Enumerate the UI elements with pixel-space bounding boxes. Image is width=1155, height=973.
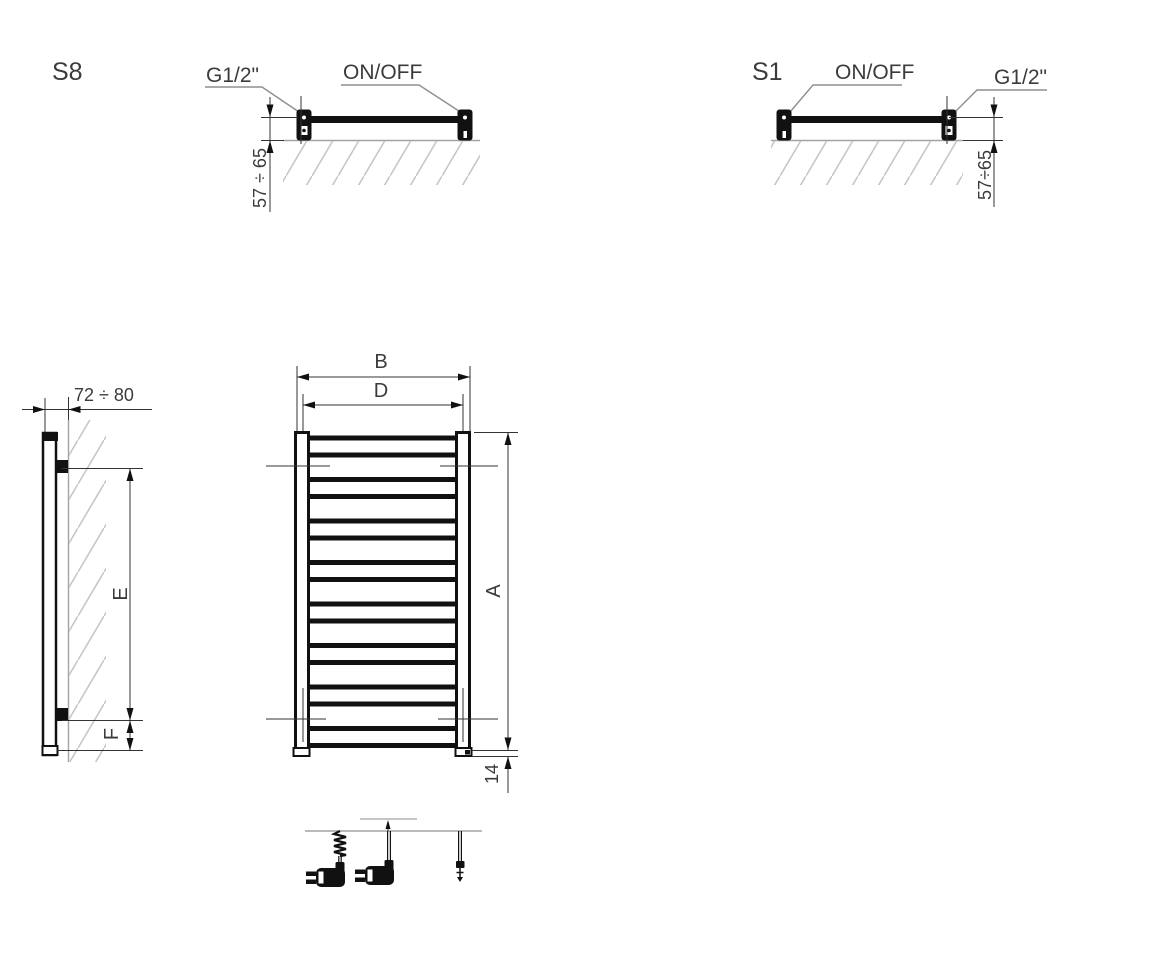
width-overall-label: B	[374, 351, 387, 373]
foot-right-plug	[465, 750, 470, 755]
collector-left	[296, 433, 309, 752]
switch-label-s1: ON/OFF	[835, 61, 914, 84]
entry-arrow-up	[386, 820, 391, 829]
arrow-down	[505, 738, 512, 751]
height-overall-dim: A	[474, 433, 518, 751]
leader-line-g12-s1	[955, 90, 1047, 112]
arrow-up	[505, 757, 512, 770]
height-overall-label: A	[483, 584, 505, 598]
rungs	[309, 436, 456, 749]
rung	[309, 743, 456, 748]
mounting-bracket-left-s8	[297, 110, 312, 141]
wall-hatch-s8	[283, 141, 480, 185]
rung	[309, 477, 456, 482]
rung	[309, 643, 456, 648]
angled-plug-icon	[306, 862, 345, 887]
straight-cable-plug-icon	[355, 831, 394, 885]
rung	[309, 660, 456, 665]
arrow-right	[33, 406, 45, 413]
bare-wire-cable-icon	[456, 831, 465, 882]
arrow-right	[458, 374, 470, 381]
foot-left	[294, 748, 310, 756]
bottom-span-label: F	[101, 728, 123, 740]
wall-hatch-side	[69, 420, 106, 762]
arrow-up	[127, 721, 134, 734]
wall-hatch-s1	[771, 141, 963, 185]
width-connections-label: D	[374, 380, 388, 402]
panel-bottom-cap	[43, 746, 58, 755]
leader-line-onoff-s1	[790, 85, 902, 112]
wall-bracket-top	[56, 460, 68, 473]
rung	[309, 494, 456, 499]
thread-label-s8: G1/2"	[206, 64, 259, 87]
arrow-left	[303, 402, 315, 409]
side-view: 72 ÷ 80 E F	[22, 385, 152, 762]
foot-offset-dim: 14	[472, 751, 518, 794]
mounting-bracket-right-s8	[458, 110, 473, 141]
radiator-dimension-drawing: S8 G1/2" ON/OFF 57 ÷ 6	[0, 0, 1155, 973]
arrow-left	[297, 374, 309, 381]
top-view-s1: S1 ON/OFF G1/2" 57÷65	[752, 58, 1047, 207]
rung	[309, 685, 456, 690]
wall-distance-label-s1: 57÷65	[975, 150, 995, 200]
top-view-s8: S8 G1/2" ON/OFF 57 ÷ 6	[52, 58, 480, 212]
wall-bracket-bottom	[56, 708, 68, 721]
rung	[309, 560, 456, 565]
model-label-s8: S8	[52, 58, 83, 86]
leader-line-g12-s8	[205, 87, 299, 112]
cable-options	[305, 819, 482, 887]
switch-label-s8: ON/OFF	[343, 61, 422, 84]
arrow-down	[127, 708, 134, 721]
arrow-down	[267, 105, 274, 118]
wall-offset-label: 72 ÷ 80	[74, 385, 134, 405]
wall-distance-label-s8: 57 ÷ 65	[250, 148, 270, 208]
bracket-span-label: E	[110, 587, 132, 600]
arrow-down	[991, 105, 998, 118]
front-view: B D	[266, 351, 518, 793]
arrow-left	[69, 406, 81, 413]
radiator-tube-top-s8	[308, 116, 459, 123]
panel-top-cap	[42, 432, 58, 441]
rung	[309, 726, 456, 731]
angled-plug-icon	[355, 860, 394, 885]
rung	[309, 536, 456, 541]
arrow-down	[127, 738, 134, 751]
mounting-bracket-left-s1	[777, 110, 792, 141]
thread-label-s1: G1/2"	[994, 66, 1047, 89]
rung	[309, 519, 456, 524]
arrow-right	[451, 402, 463, 409]
arrow-up	[505, 433, 512, 446]
rung	[309, 619, 456, 624]
rung	[309, 453, 456, 458]
rung	[309, 436, 456, 441]
leader-line-onoff-s8	[341, 85, 462, 113]
radiator-tube-top-s1	[791, 116, 942, 123]
rung	[309, 602, 456, 607]
arrow-up	[127, 469, 134, 482]
panel-profile	[43, 433, 56, 755]
model-label-s1: S1	[752, 58, 783, 86]
rung	[309, 702, 456, 707]
foot-offset-label: 14	[482, 764, 502, 784]
spiral-cable-plug-icon	[306, 831, 346, 887]
mounting-bracket-right-s1	[942, 110, 957, 141]
drawing-svg: S8 G1/2" ON/OFF 57 ÷ 6	[0, 0, 1155, 973]
rung	[309, 577, 456, 582]
coil	[334, 831, 346, 856]
